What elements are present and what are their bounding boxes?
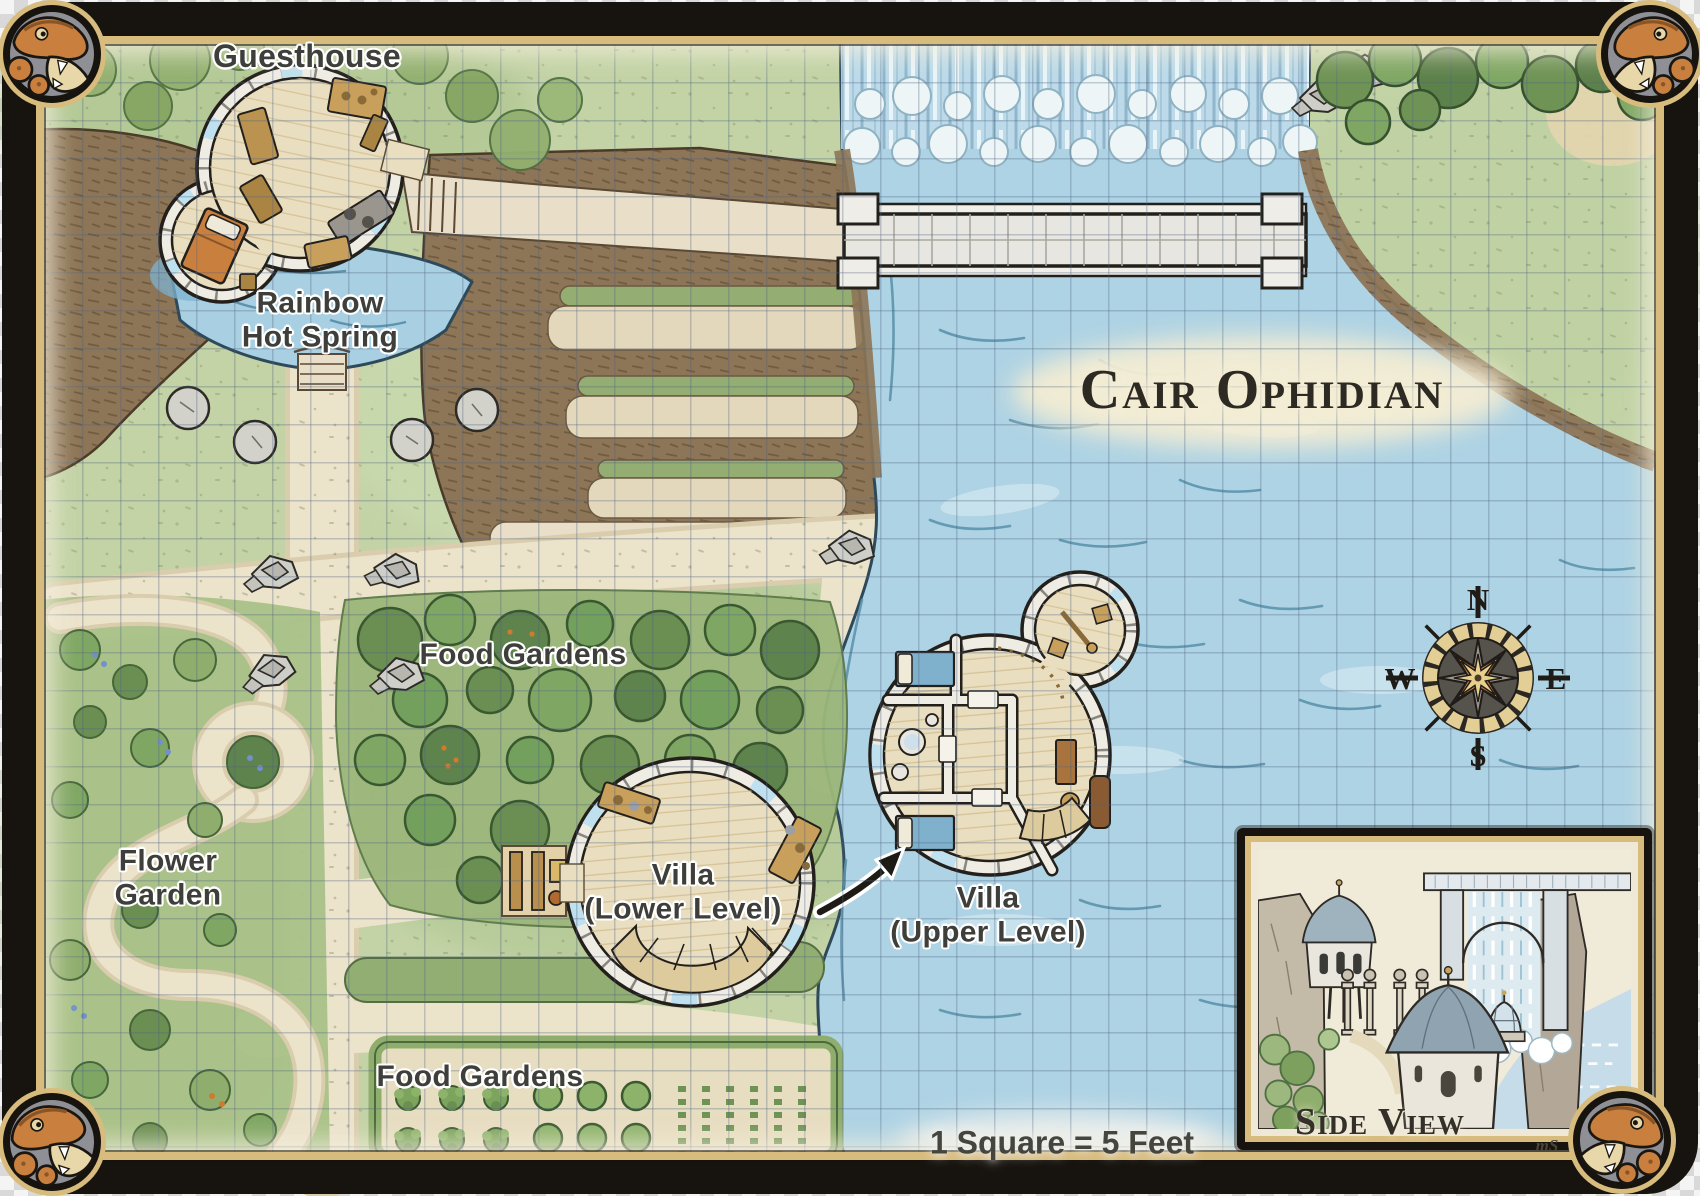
bridge [838, 194, 1306, 288]
snake-head-icon [1573, 1091, 1671, 1189]
snake-head-icon [3, 1093, 101, 1191]
compass-west-label: W [1385, 661, 1416, 696]
snake-head-icon [3, 5, 101, 103]
snake-head-icon [1601, 5, 1699, 103]
compass-south-label: S [1469, 738, 1486, 773]
cair-ophidian-map: N S W E [0, 0, 1700, 1196]
compass-east-label: E [1546, 661, 1567, 696]
compass-north-label: N [1467, 583, 1489, 617]
compass-rose-icon: N S W E [1383, 583, 1573, 773]
crop-garden [375, 1042, 837, 1158]
waterfall [841, 27, 1317, 166]
side-view-illustration [1258, 849, 1631, 1129]
